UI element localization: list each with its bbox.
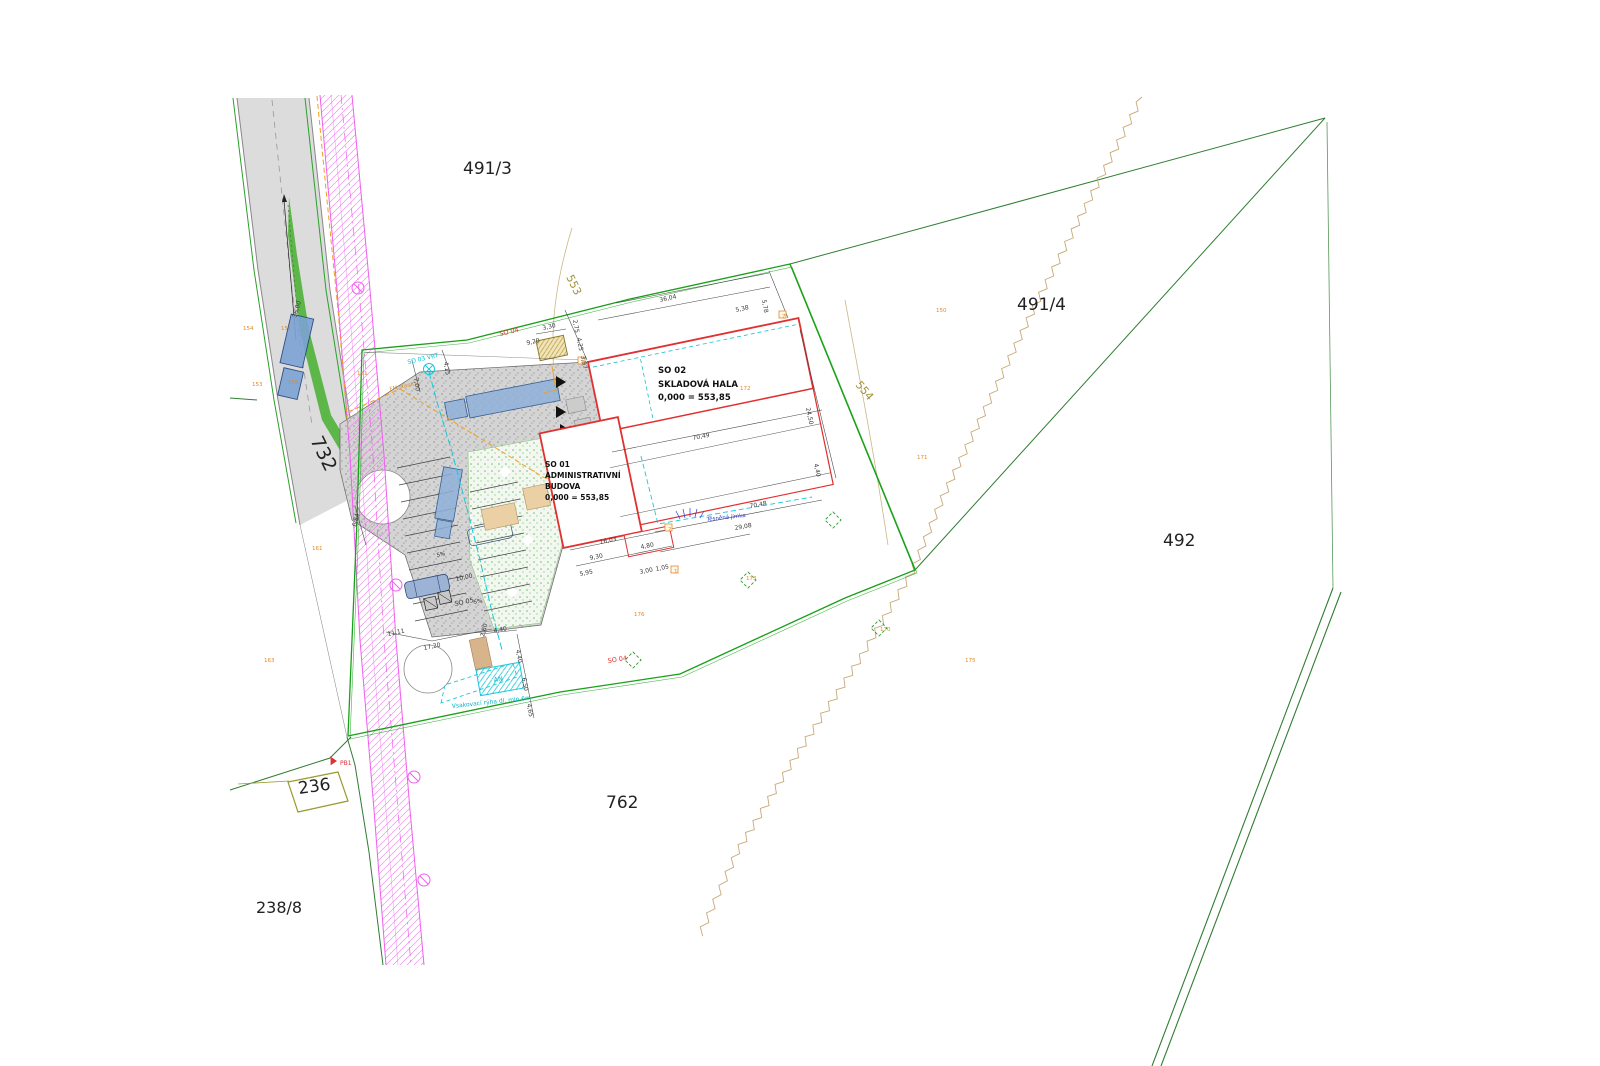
survey-point-number: 2 [668, 527, 672, 533]
parcel-label-491-4: 491/4 [1017, 295, 1066, 315]
hala-name: SKLADOVÁ HALA [658, 378, 738, 390]
survey-point-number: 4 [581, 360, 585, 366]
parcel-label-491-3: 491/3 [463, 159, 512, 179]
survey-point-number: 1 [674, 569, 678, 575]
site-plan-drawing: 491/3491/4492762236238/8732553554SO 02SK… [0, 0, 1600, 1066]
survey-point-number: 170 [880, 627, 891, 633]
survey-point-number: 176 [634, 612, 645, 618]
survey-point-number: 171 [917, 455, 928, 461]
survey-point-number: 173 [746, 576, 757, 582]
survey-point-number: 7 [782, 314, 786, 320]
parcel-label-492: 492 [1163, 531, 1195, 551]
parcel-label-762: 762 [606, 793, 638, 813]
benchmark-label: PB1 [340, 760, 352, 767]
admin-name-2: BUDOVA [545, 482, 581, 491]
admin-name-1: ADMINISTRATIVNÍ [545, 471, 621, 480]
paper-background [0, 0, 1600, 1066]
parcel-label-238-8: 238/8 [256, 898, 302, 917]
tank-label: AN [493, 675, 503, 684]
survey-point-number: 151 [281, 326, 292, 332]
survey-point-number: 153 [252, 382, 263, 388]
survey-point-number: 175 [965, 658, 976, 664]
admin-level: 0,000 = 553,85 [545, 493, 609, 502]
hala-so-number: SO 02 [658, 366, 686, 376]
survey-point-number: 151 [357, 371, 368, 377]
survey-point-number: 158 [288, 380, 299, 386]
survey-point-number: 150 [936, 308, 947, 314]
site-plan-canvas: 491/3491/4492762236238/8732553554SO 02SK… [0, 0, 1600, 1066]
survey-point-number: 163 [264, 658, 275, 664]
survey-point-number: 161 [312, 546, 323, 552]
hala-level: 0,000 = 553,85 [658, 393, 731, 403]
admin-so-number: SO 01 [545, 460, 570, 469]
survey-point-number: 172 [740, 386, 751, 392]
survey-point-number: 154 [243, 326, 254, 332]
